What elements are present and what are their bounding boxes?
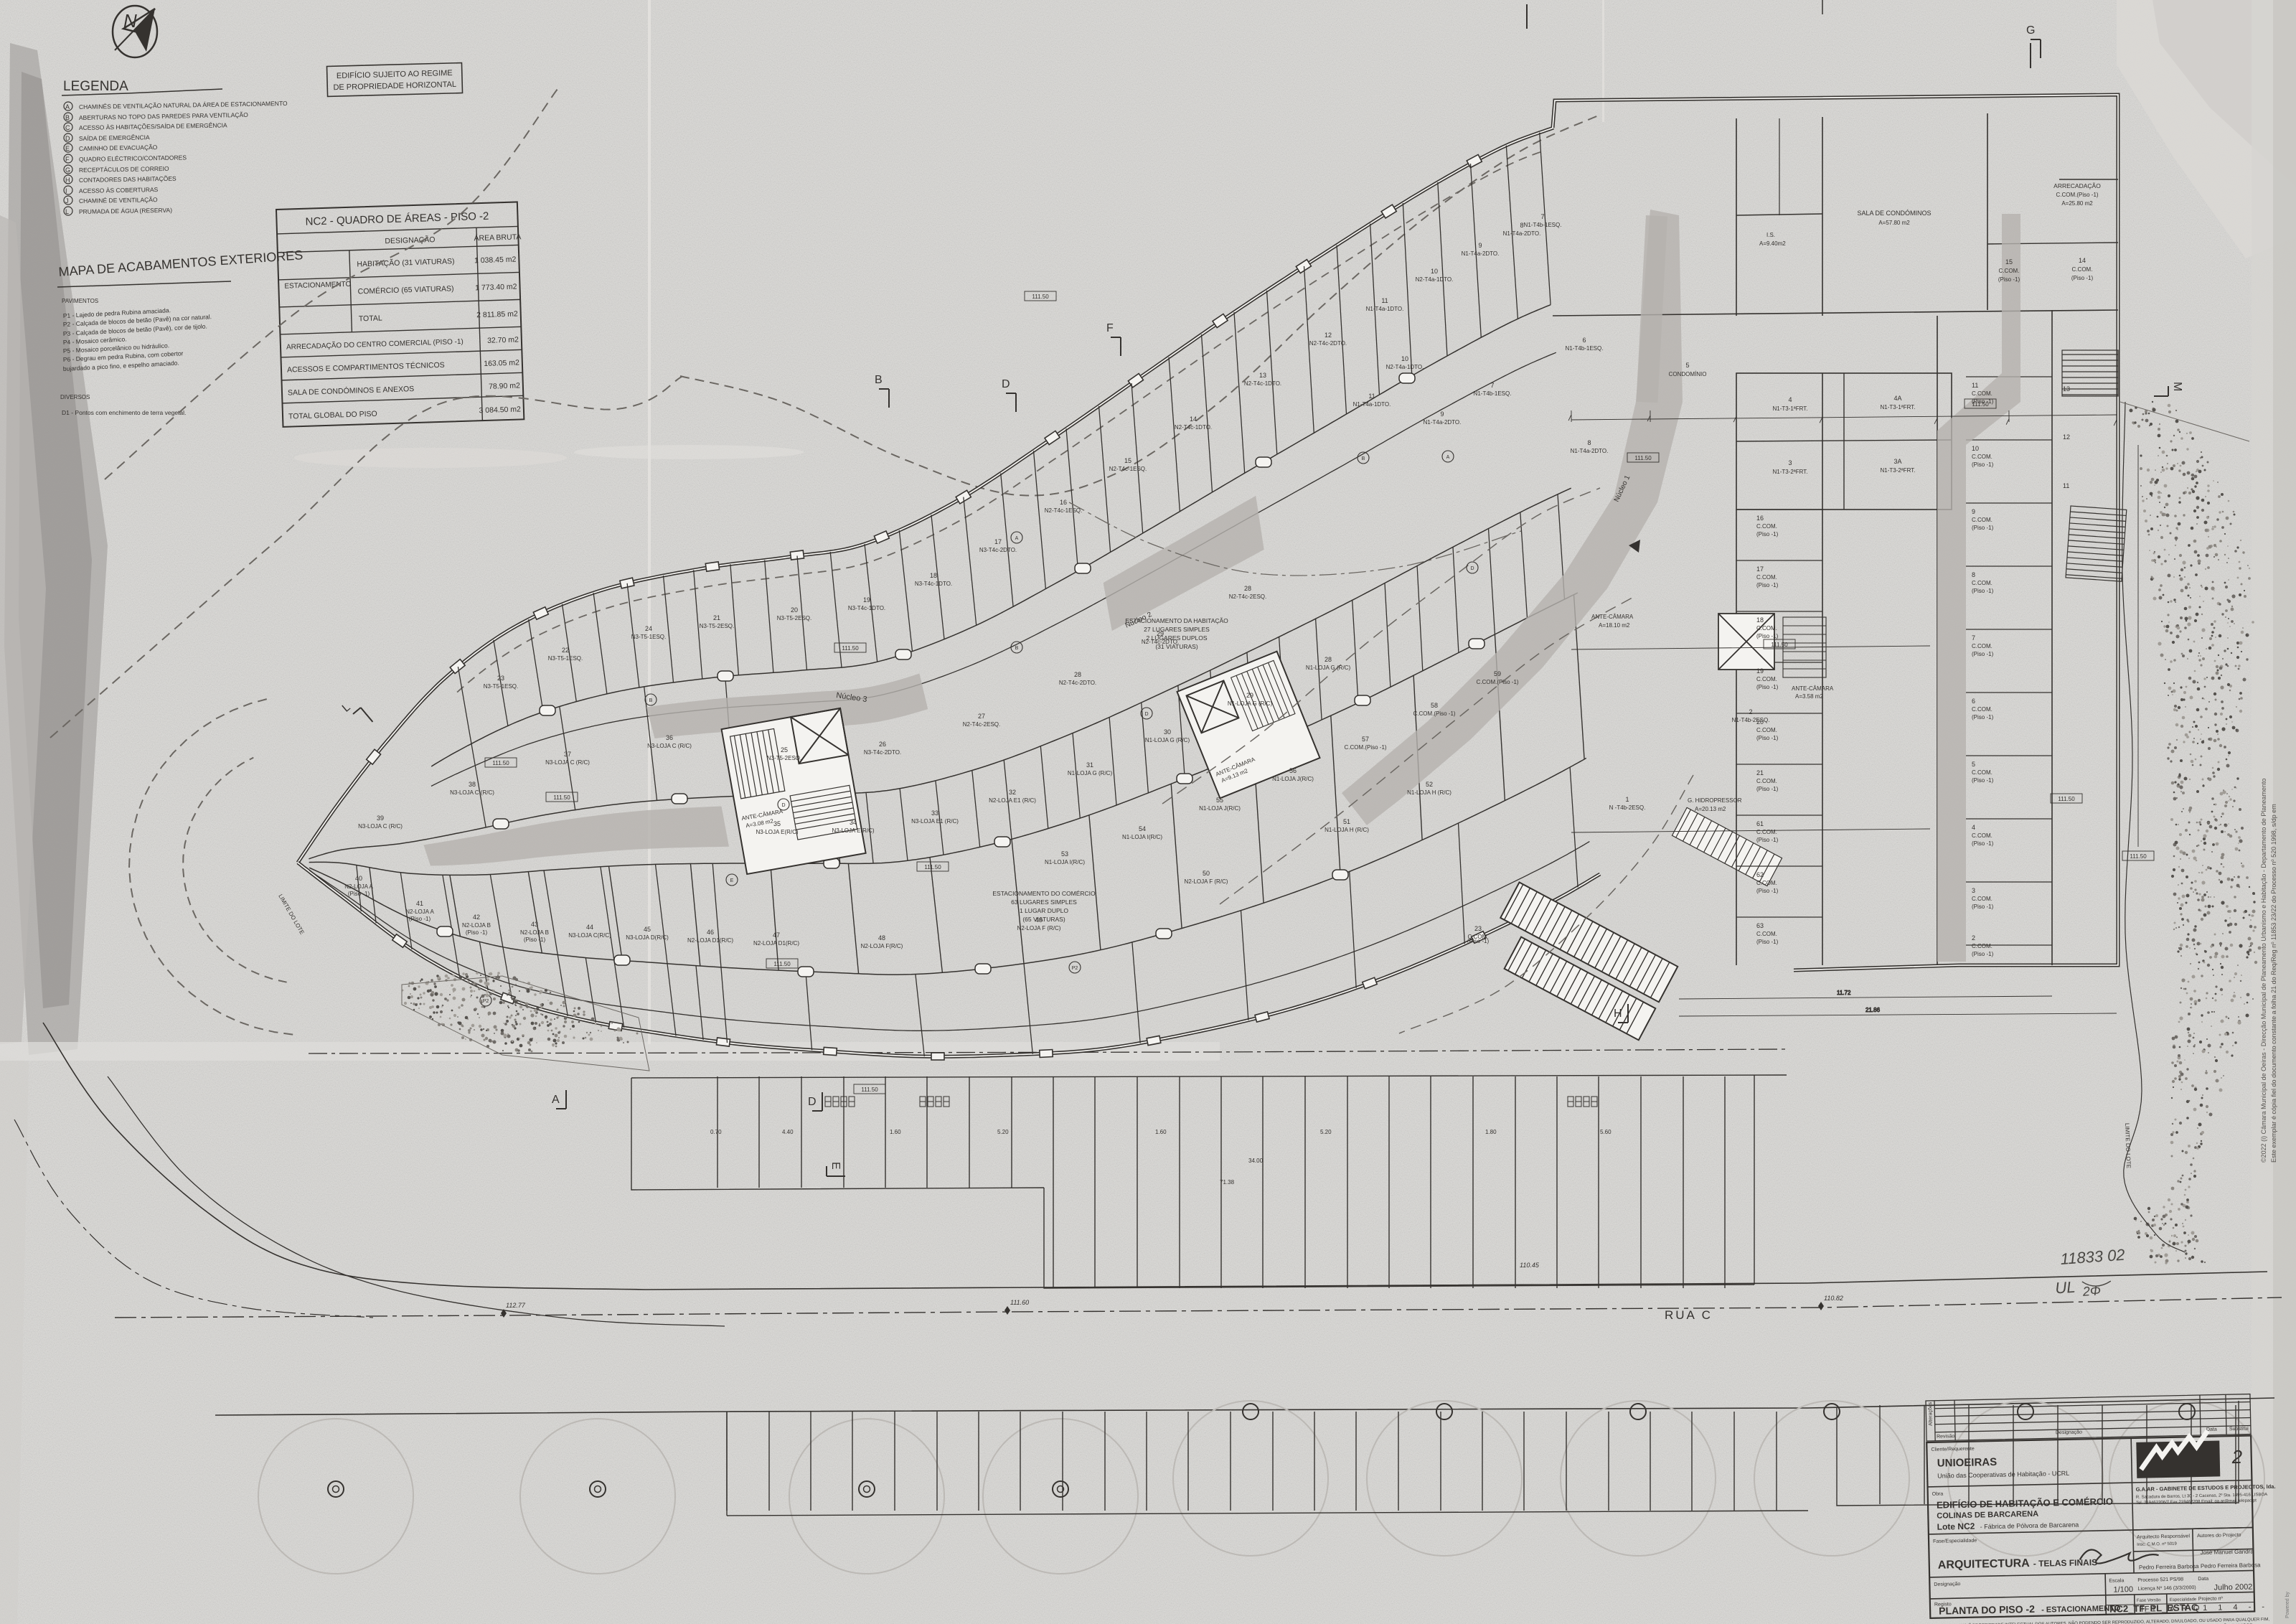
svg-text:39: 39 — [377, 815, 384, 822]
svg-text:P2: P2 — [1072, 966, 1078, 971]
svg-text:28: 28 — [1325, 656, 1332, 663]
svg-text:N1-LOJA H (R/C): N1-LOJA H (R/C) — [1407, 789, 1452, 796]
svg-text:PAVIMENTOS: PAVIMENTOS — [62, 298, 98, 304]
svg-text:(Piso -1): (Piso -1) — [1972, 903, 1994, 910]
svg-text:(Piso -1): (Piso -1) — [1972, 714, 1994, 721]
svg-text:25: 25 — [781, 746, 788, 754]
svg-text:N2-LOJA A: N2-LOJA A — [405, 909, 434, 915]
svg-text:111.50: 111.50 — [1032, 294, 1049, 300]
svg-text:0.70: 0.70 — [710, 1129, 722, 1135]
svg-text:63 LUGARES SIMPLES: 63 LUGARES SIMPLES — [1011, 898, 1077, 906]
svg-text:35: 35 — [773, 820, 781, 827]
svg-text:28: 28 — [1074, 671, 1081, 678]
svg-text:(Piso -1): (Piso -1) — [1972, 398, 1994, 405]
svg-text:15: 15 — [1124, 457, 1131, 464]
svg-text:DESIGNAÇÃO: DESIGNAÇÃO — [385, 235, 435, 245]
svg-text:A=9.40m2: A=9.40m2 — [1759, 240, 1786, 247]
svg-text:(Piso -1): (Piso -1) — [1972, 651, 1994, 657]
svg-text:11.72: 11.72 — [1837, 990, 1851, 996]
svg-text:UL: UL — [2054, 1278, 2076, 1297]
svg-text:Escala: Escala — [2109, 1578, 2124, 1583]
svg-text:Obra: Obra — [1932, 1492, 1944, 1497]
svg-text:N1-T3-2ªFRT.: N1-T3-2ªFRT. — [1772, 469, 1807, 475]
svg-text:5.20: 5.20 — [1320, 1129, 1332, 1135]
svg-text:A: A — [1015, 536, 1019, 541]
svg-text:N1-LOJA I(R/C): N1-LOJA I(R/C) — [1045, 859, 1085, 865]
svg-text:33: 33 — [931, 809, 938, 817]
svg-text:H: H — [65, 177, 70, 184]
svg-text:G. HIDROPRESSOR: G. HIDROPRESSOR — [1688, 797, 1742, 804]
svg-text:Especialidade: Especialidade — [2170, 1597, 2197, 1602]
svg-text:C.COM.: C.COM. — [1756, 523, 1777, 530]
svg-text:Fase Versão: Fase Versão — [2137, 1598, 2161, 1603]
svg-text:4: 4 — [1788, 396, 1792, 403]
svg-text:C.COM.: C.COM. — [1972, 832, 1992, 839]
svg-text:A=20.13 m2: A=20.13 m2 — [1695, 806, 1726, 812]
svg-text:(Piso -1): (Piso -1) — [1998, 276, 2020, 283]
svg-text:N2-LOJA B: N2-LOJA B — [462, 922, 491, 929]
svg-text:P2: P2 — [483, 999, 489, 1004]
svg-text:N3-T5-2ESQ.: N3-T5-2ESQ. — [700, 623, 734, 629]
svg-text:N2-LOJA D1(R/C): N2-LOJA D1(R/C) — [753, 940, 799, 947]
svg-text:A R Q: A R Q — [2170, 1604, 2202, 1613]
svg-text:N2-LOJA F(R/C): N2-LOJA F(R/C) — [861, 943, 903, 949]
svg-text:N3-T5-2ESQ.: N3-T5-2ESQ. — [777, 615, 811, 621]
svg-text:ARRECADAÇÃO: ARRECADAÇÃO — [2053, 182, 2101, 189]
svg-text:(Piso -1): (Piso -1) — [2071, 275, 2094, 281]
svg-text:(Piso -1): (Piso -1) — [1756, 531, 1779, 538]
svg-text:C.COM.: C.COM. — [2072, 266, 2093, 273]
svg-text:34: 34 — [850, 819, 857, 826]
svg-text:D1 - Pontos com enchimento de: D1 - Pontos com enchimento de terra vege… — [62, 409, 186, 416]
svg-text:B: B — [649, 698, 653, 703]
svg-text:CAMINHO DE EVACUAÇÃO: CAMINHO DE EVACUAÇÃO — [79, 144, 158, 152]
svg-text:N2-LOJA D1(R/C): N2-LOJA D1(R/C) — [687, 937, 733, 944]
svg-text:L: L — [65, 208, 69, 215]
svg-text:11: 11 — [2063, 482, 2069, 489]
svg-text:43: 43 — [531, 921, 538, 928]
svg-text:N3-LOJA C (R/C): N3-LOJA C (R/C) — [647, 743, 692, 749]
svg-text:C.COM.: C.COM. — [1972, 390, 1992, 397]
svg-text:B: B — [1362, 456, 1365, 461]
svg-text:C.COM.: C.COM. — [1756, 727, 1777, 733]
svg-text:F: F — [65, 156, 70, 163]
svg-text:B: B — [875, 374, 883, 386]
svg-text:9: 9 — [1440, 410, 1444, 418]
svg-text:(Piso -1): (Piso -1) — [1756, 582, 1779, 588]
svg-text:(Piso -1): (Piso -1) — [409, 916, 431, 922]
svg-text:110.45: 110.45 — [1520, 1262, 1540, 1269]
svg-text:I.S.: I.S. — [1766, 232, 1775, 238]
svg-text:PLANTA DO PISO -2: PLANTA DO PISO -2 — [1939, 1603, 2035, 1617]
svg-text:23: 23 — [1474, 925, 1482, 932]
svg-text:N2-T4a-1DTO.: N2-T4a-1DTO. — [1416, 276, 1454, 283]
svg-text:C.COM.: C.COM. — [1756, 931, 1777, 937]
svg-text:44: 44 — [586, 924, 593, 931]
svg-text:(Piso -1): (Piso -1) — [1756, 939, 1779, 945]
svg-text:C.COM.(Piso -1): C.COM.(Piso -1) — [1476, 679, 1518, 685]
svg-text:N2-T4a-1DTO.: N2-T4a-1DTO. — [1386, 364, 1424, 370]
svg-text:Projecto nº: Projecto nº — [2198, 1596, 2224, 1602]
svg-text:(Piso -1): (Piso -1) — [1756, 837, 1779, 843]
svg-text:37: 37 — [564, 751, 571, 758]
svg-text:1: 1 — [1625, 796, 1629, 803]
svg-text:11: 11 — [1381, 297, 1388, 304]
svg-text:N3-LOJA C(R/C): N3-LOJA C(R/C) — [568, 932, 611, 939]
svg-text:TF 1: TF 1 — [2140, 1605, 2156, 1613]
svg-text:(65 VIATURAS): (65 VIATURAS) — [1022, 916, 1065, 923]
svg-text:2 811.85 m2: 2 811.85 m2 — [476, 309, 518, 319]
svg-text:(Piso -1): (Piso -1) — [1972, 777, 1994, 784]
svg-text:41: 41 — [416, 900, 423, 907]
svg-text:13: 13 — [1259, 372, 1266, 379]
svg-text:C.COM.: C.COM. — [1972, 454, 1992, 460]
svg-text:111.50: 111.50 — [1634, 455, 1652, 461]
svg-text:5: 5 — [1685, 362, 1689, 369]
svg-text:N1-T4a-2DTO.: N1-T4a-2DTO. — [1424, 419, 1462, 426]
svg-text:N1-T4a-2DTO.: N1-T4a-2DTO. — [1462, 250, 1500, 257]
svg-text:N3-T5-2ESQ.: N3-T5-2ESQ. — [767, 755, 801, 761]
svg-text:N1-T3-1ªFRT.: N1-T3-1ªFRT. — [1772, 405, 1807, 412]
svg-text:7: 7 — [1540, 213, 1544, 220]
svg-text:ESTACIONAMENTO DA HABITAÇÃO: ESTACIONAMENTO DA HABITAÇÃO — [1125, 617, 1228, 624]
svg-text:N3-T4c-2DTO.: N3-T4c-2DTO. — [979, 547, 1017, 553]
svg-text:1 1 4 - -: 1 1 4 - - — [2203, 1602, 2269, 1613]
svg-text:N1-LOJA I(R/C): N1-LOJA I(R/C) — [1122, 834, 1162, 840]
svg-text:N2-LOJA F (R/C): N2-LOJA F (R/C) — [1017, 925, 1061, 931]
svg-text:9: 9 — [1972, 508, 1975, 515]
svg-text:32.70 m2: 32.70 m2 — [487, 335, 519, 344]
svg-text:N3-T4c-2DTO.: N3-T4c-2DTO. — [864, 749, 901, 756]
svg-text:A: A — [552, 1094, 560, 1106]
svg-text:C: C — [65, 124, 70, 131]
svg-text:N3-LOJA C (R/C): N3-LOJA C (R/C) — [450, 789, 494, 796]
svg-text:3: 3 — [1788, 459, 1792, 466]
svg-text:71.38: 71.38 — [1220, 1179, 1235, 1186]
svg-text:N3-T4c-1DTO.: N3-T4c-1DTO. — [915, 581, 952, 587]
svg-text:34.00: 34.00 — [1248, 1158, 1264, 1164]
svg-text:Cliente/Requerente: Cliente/Requerente — [1931, 1447, 1975, 1452]
svg-text:Revisão: Revisão — [1937, 1434, 1955, 1440]
svg-text:G: G — [2026, 24, 2035, 37]
svg-text:Este exemplar é cópia fiel do: Este exemplar é cópia fiel do documento … — [2270, 804, 2277, 1163]
svg-text:RUA C: RUA C — [1665, 1308, 1713, 1322]
svg-text:1 LUGAR DUPLO: 1 LUGAR DUPLO — [1020, 907, 1068, 914]
svg-text:N1-LOJA G (R/C): N1-LOJA G (R/C) — [1145, 737, 1190, 743]
svg-text:52: 52 — [1426, 781, 1433, 788]
svg-text:N1-T4b-1ESQ.: N1-T4b-1ESQ. — [1566, 345, 1604, 352]
svg-text:54: 54 — [1139, 825, 1146, 832]
svg-text:36: 36 — [666, 734, 673, 741]
svg-text:N2-T4c-1DTO.: N2-T4c-1DTO. — [1175, 424, 1212, 431]
svg-text:C.COM.: C.COM. — [1756, 880, 1777, 886]
svg-text:20: 20 — [791, 606, 798, 614]
svg-text:D: D — [808, 1096, 817, 1108]
svg-text:61: 61 — [1756, 820, 1764, 827]
svg-text:N2-LOJA F (R/C): N2-LOJA F (R/C) — [1185, 878, 1228, 885]
svg-text:Pedro Ferreira Barbosa: Pedro Ferreira Barbosa — [2201, 1562, 2261, 1569]
svg-text:23: 23 — [497, 675, 504, 682]
svg-text:14: 14 — [1190, 416, 1197, 423]
svg-text:A: A — [1446, 455, 1450, 460]
svg-text:27 LUGARES SIMPLES: 27 LUGARES SIMPLES — [1144, 626, 1210, 633]
svg-text:N1-LOJA J(R/C): N1-LOJA J(R/C) — [1199, 805, 1241, 812]
svg-text:11: 11 — [1972, 382, 1978, 389]
svg-text:A=25.80 m2: A=25.80 m2 — [2061, 200, 2093, 207]
svg-text:111.50: 111.50 — [773, 961, 791, 967]
svg-text:19: 19 — [863, 596, 870, 604]
svg-text:C.COM.(Piso -1): C.COM.(Piso -1) — [2056, 192, 2098, 198]
svg-text:78.90 m2: 78.90 m2 — [489, 381, 520, 390]
svg-text:6: 6 — [1972, 698, 1975, 705]
svg-text:N2-T4c-2DTO.: N2-T4c-2DTO. — [1059, 680, 1096, 686]
svg-text:C.COM.: C.COM. — [1972, 580, 1992, 586]
svg-text:C.COM.: C.COM. — [1756, 676, 1777, 682]
svg-text:111.50: 111.50 — [924, 864, 941, 870]
svg-text:28: 28 — [1244, 585, 1251, 592]
svg-text:C.COM.: C.COM. — [1756, 574, 1777, 581]
svg-text:7: 7 — [1490, 382, 1494, 389]
svg-text:N3-LOJA E1 (R/C): N3-LOJA E1 (R/C) — [911, 818, 959, 825]
svg-text:31: 31 — [1086, 761, 1093, 769]
svg-text:C.COM.: C.COM. — [1972, 643, 1992, 649]
svg-text:5.20: 5.20 — [997, 1129, 1009, 1135]
svg-text:Registo: Registo — [1934, 1602, 1952, 1607]
svg-text:1.60: 1.60 — [1155, 1129, 1167, 1135]
svg-text:E: E — [730, 878, 734, 883]
svg-text:10: 10 — [1401, 355, 1408, 362]
svg-text:A: A — [65, 103, 70, 111]
svg-text:- TELAS FINAIS: - TELAS FINAIS — [2033, 1557, 2098, 1569]
svg-text:1 038.45 m2: 1 038.45 m2 — [474, 255, 517, 266]
svg-text:Designação: Designação — [2056, 1430, 2082, 1435]
svg-text:N3-LOJA C (R/C): N3-LOJA C (R/C) — [545, 759, 590, 766]
svg-text:111.60: 111.60 — [1010, 1299, 1029, 1306]
svg-text:5: 5 — [1972, 761, 1975, 768]
svg-text:8: 8 — [1587, 439, 1591, 446]
svg-text:57: 57 — [1362, 736, 1369, 743]
svg-text:A=57.80 m2: A=57.80 m2 — [1878, 220, 1910, 226]
svg-text:(Piso -1): (Piso -1) — [1467, 938, 1490, 944]
svg-text:E: E — [829, 1162, 842, 1170]
svg-text:N1-LOJA J(R/C): N1-LOJA J(R/C) — [1272, 776, 1314, 782]
svg-text:M: M — [2171, 382, 2183, 391]
svg-text:(Piso -1): (Piso -1) — [524, 937, 546, 943]
svg-text:38: 38 — [469, 781, 476, 788]
svg-text:3: 3 — [1972, 887, 1975, 894]
svg-text:G: G — [65, 166, 70, 174]
svg-text:112.77: 112.77 — [506, 1302, 526, 1309]
svg-text:N2-T4c-1ESQ.: N2-T4c-1ESQ. — [1045, 507, 1082, 514]
svg-text:16: 16 — [1756, 515, 1764, 522]
svg-text:10: 10 — [1972, 445, 1979, 452]
svg-text:E: E — [65, 145, 70, 152]
svg-text:D: D — [781, 803, 785, 808]
svg-text:(Piso -1): (Piso -1) — [1756, 735, 1779, 741]
svg-text:Processo 521 PS/98: Processo 521 PS/98 — [2137, 1577, 2183, 1583]
svg-text:C.COM.: C.COM. — [1972, 896, 1992, 902]
svg-text:UNIOEIRAS: UNIOEIRAS — [1937, 1456, 1998, 1470]
svg-text:©2022 (i) Câmara Municip: ©2022 (i) Câmara Municipal de Oeiras - D… — [2260, 779, 2267, 1163]
svg-text:José Manuel Gandra: José Manuel Gandra — [2200, 1548, 2254, 1556]
svg-text:B: B — [65, 114, 70, 121]
svg-text:12: 12 — [1325, 332, 1332, 339]
svg-text:(31 VIATURAS): (31 VIATURAS) — [1155, 643, 1198, 650]
svg-text:2: 2 — [1972, 934, 1975, 942]
svg-text:111.50: 111.50 — [2058, 796, 2075, 802]
svg-text:3A: 3A — [1893, 458, 1901, 465]
svg-text:22: 22 — [562, 647, 569, 654]
svg-text:30: 30 — [1164, 728, 1171, 736]
svg-text:SALA DE CONDÓMINOS: SALA DE CONDÓMINOS — [1857, 210, 1931, 217]
svg-text:Pedro Ferreira Barbosa: Pedro Ferreira Barbosa — [2139, 1563, 2199, 1571]
svg-text:C.COM.(Piso -1): C.COM.(Piso -1) — [1413, 710, 1455, 717]
svg-text:SAÍDA DE EMERGÊNCIA: SAÍDA DE EMERGÊNCIA — [79, 133, 150, 142]
svg-text:Designação: Designação — [1934, 1582, 1960, 1587]
svg-text:13: 13 — [2063, 385, 2070, 393]
svg-text:11: 11 — [1368, 393, 1375, 400]
svg-text:C.COM.(Piso -1): C.COM.(Piso -1) — [1344, 744, 1386, 751]
svg-text:29: 29 — [1246, 692, 1253, 699]
svg-text:CHAMINÉ DE VENTILAÇÃO: CHAMINÉ DE VENTILAÇÃO — [79, 196, 158, 205]
svg-text:42: 42 — [473, 914, 480, 921]
svg-text:14: 14 — [2079, 257, 2086, 264]
svg-text:Lote NC2: Lote NC2 — [1937, 1521, 1975, 1532]
svg-text:N2-T4c-2ESQ.: N2-T4c-2ESQ. — [963, 721, 1000, 728]
svg-text:40: 40 — [355, 875, 362, 882]
svg-text:47: 47 — [773, 931, 780, 939]
svg-text:N2-LOJA A: N2-LOJA A — [344, 883, 373, 890]
svg-text:27: 27 — [978, 713, 985, 720]
svg-text:N1-T4a-2DTO.: N1-T4a-2DTO. — [1571, 448, 1609, 454]
svg-text:D: D — [1144, 712, 1148, 717]
svg-text:18: 18 — [930, 572, 937, 579]
svg-text:20: 20 — [1756, 718, 1764, 726]
svg-text:111.50: 111.50 — [492, 760, 509, 766]
svg-text:Julho 2002: Julho 2002 — [2213, 1583, 2252, 1592]
svg-text:Alterações: Alterações — [1928, 1402, 1934, 1426]
svg-text:N1-T4b-1ESQ.: N1-T4b-1ESQ. — [1474, 390, 1512, 397]
svg-text:A=18.10 m2: A=18.10 m2 — [1599, 622, 1630, 629]
svg-text:N: N — [123, 10, 137, 32]
svg-text:TOTAL: TOTAL — [359, 314, 382, 323]
svg-text:Autores do Projecto: Autores do Projecto — [2197, 1533, 2241, 1539]
svg-text:56: 56 — [1289, 767, 1297, 774]
svg-text:ARQUITECTURA: ARQUITECTURA — [1938, 1557, 2031, 1572]
svg-text:1/100: 1/100 — [2113, 1585, 2133, 1595]
svg-text:111.50: 111.50 — [842, 645, 859, 652]
svg-text:45: 45 — [644, 926, 651, 933]
svg-text:(Piso -1): (Piso -1) — [348, 891, 370, 897]
svg-text:17: 17 — [994, 538, 1002, 545]
svg-text:N3-LOJA E(R/C): N3-LOJA E(R/C) — [832, 827, 874, 834]
svg-text:ÁREA BRUTA: ÁREA BRUTA — [474, 232, 521, 243]
svg-text:62: 62 — [1756, 871, 1764, 878]
svg-text:C.COM.: C.COM. — [1999, 268, 2020, 274]
svg-text:(Piso -1): (Piso -1) — [1972, 951, 1994, 957]
svg-text:N2-LOJA B: N2-LOJA B — [520, 929, 549, 936]
svg-text:16: 16 — [1060, 499, 1067, 506]
svg-text:N1-LOJA G (R/C): N1-LOJA G (R/C) — [1228, 700, 1273, 707]
svg-text:ACESSO ÀS COBERTURAS: ACESSO ÀS COBERTURAS — [79, 186, 159, 194]
svg-text:2: 2 — [2231, 1446, 2243, 1468]
svg-text:N1-T4b-1ESQ.: N1-T4b-1ESQ. — [1524, 222, 1562, 228]
svg-text:Powered by: Powered by — [2285, 1592, 2290, 1618]
svg-text:50: 50 — [1203, 870, 1210, 877]
svg-text:59: 59 — [1494, 670, 1501, 677]
svg-text:17: 17 — [1756, 565, 1764, 573]
svg-text:(Piso -1): (Piso -1) — [1972, 461, 1994, 468]
svg-text:A=3.58 m2: A=3.58 m2 — [1795, 693, 1823, 700]
svg-text:N2-T4c-2ESQ.: N2-T4c-2ESQ. — [1229, 593, 1266, 600]
svg-text:4.40: 4.40 — [782, 1129, 794, 1135]
svg-text:12: 12 — [2063, 433, 2070, 441]
svg-text:C.COM.: C.COM. — [1756, 625, 1777, 632]
svg-text:(Piso -1): (Piso -1) — [1756, 684, 1779, 690]
svg-text:C.COM.: C.COM. — [1756, 829, 1777, 835]
svg-text:53: 53 — [1061, 850, 1068, 858]
svg-text:N1-T3-1ªFRT.: N1-T3-1ªFRT. — [1880, 404, 1915, 410]
svg-text:(Piso -1): (Piso -1) — [1972, 840, 1994, 847]
svg-text:32: 32 — [1009, 789, 1016, 796]
svg-text:H: H — [1614, 1008, 1622, 1020]
svg-text:58: 58 — [1431, 702, 1438, 709]
svg-text:ANTE-CÂMARA: ANTE-CÂMARA — [1792, 685, 1834, 692]
svg-text:(Piso -1): (Piso -1) — [1972, 588, 1994, 594]
svg-text:C.COM.: C.COM. — [1972, 769, 1992, 776]
svg-text:N1-T3-2ªFRT.: N1-T3-2ªFRT. — [1880, 467, 1915, 474]
svg-text:(Piso -1): (Piso -1) — [1972, 525, 1994, 531]
svg-text:CONDOMÍNIO: CONDOMÍNIO — [1669, 371, 1707, 377]
svg-text:10: 10 — [1431, 268, 1438, 275]
svg-text:2 LUGARES DUPLOS: 2 LUGARES DUPLOS — [1146, 634, 1207, 642]
svg-text:ESTACIONAMENTO DO COMÉRCIO: ESTACIONAMENTO DO COMÉRCIO — [992, 890, 1096, 897]
svg-text:Substitui: Substitui — [2229, 1427, 2249, 1432]
svg-text:163.05 m2: 163.05 m2 — [484, 358, 519, 368]
svg-text:1.80: 1.80 — [1485, 1129, 1497, 1135]
svg-text:(Piso -1): (Piso -1) — [1756, 633, 1779, 639]
svg-text:6: 6 — [1582, 337, 1586, 344]
svg-text:D: D — [1002, 378, 1010, 390]
svg-text:3 084.50 m2: 3 084.50 m2 — [479, 405, 521, 415]
svg-text:N3-T5-1ESQ.: N3-T5-1ESQ. — [631, 634, 666, 640]
svg-text:N1-T4a-1DTO.: N1-T4a-1DTO. — [1353, 401, 1391, 408]
svg-text:Fase/Especialidade: Fase/Especialidade — [1933, 1539, 1977, 1544]
svg-text:7: 7 — [1972, 634, 1975, 642]
svg-text:N2-T4c-2DTO.: N2-T4c-2DTO. — [1309, 340, 1347, 347]
svg-text:24: 24 — [645, 625, 652, 632]
svg-text:N1-T4b-2ESQ.: N1-T4b-2ESQ. — [1732, 717, 1770, 723]
svg-text:N2-LOJA E1 (R/C): N2-LOJA E1 (R/C) — [989, 797, 1036, 804]
svg-text:110.82: 110.82 — [1824, 1295, 1843, 1302]
svg-text:4: 4 — [1972, 824, 1975, 831]
svg-text:111.50: 111.50 — [2130, 853, 2147, 860]
svg-text:N2-T4c-1DTO.: N2-T4c-1DTO. — [1244, 380, 1281, 387]
svg-text:2: 2 — [1749, 708, 1752, 715]
svg-text:8: 8 — [1972, 571, 1975, 578]
svg-text:B: B — [1015, 646, 1019, 651]
svg-text:N3-LOJA E(R/C): N3-LOJA E(R/C) — [756, 829, 798, 835]
svg-text:51: 51 — [1343, 818, 1350, 825]
svg-text:N3-LOJA D(R/C): N3-LOJA D(R/C) — [626, 934, 669, 941]
svg-text:N3-T5-1ESQ.: N3-T5-1ESQ. — [548, 655, 583, 662]
svg-text:C.COM.: C.COM. — [1972, 706, 1992, 713]
svg-text:19: 19 — [1756, 667, 1764, 675]
svg-text:9: 9 — [1478, 242, 1482, 249]
svg-text:48: 48 — [878, 934, 885, 942]
svg-text:N1-LOJA H (R/C): N1-LOJA H (R/C) — [1325, 827, 1369, 833]
svg-text:D: D — [1470, 566, 1474, 571]
